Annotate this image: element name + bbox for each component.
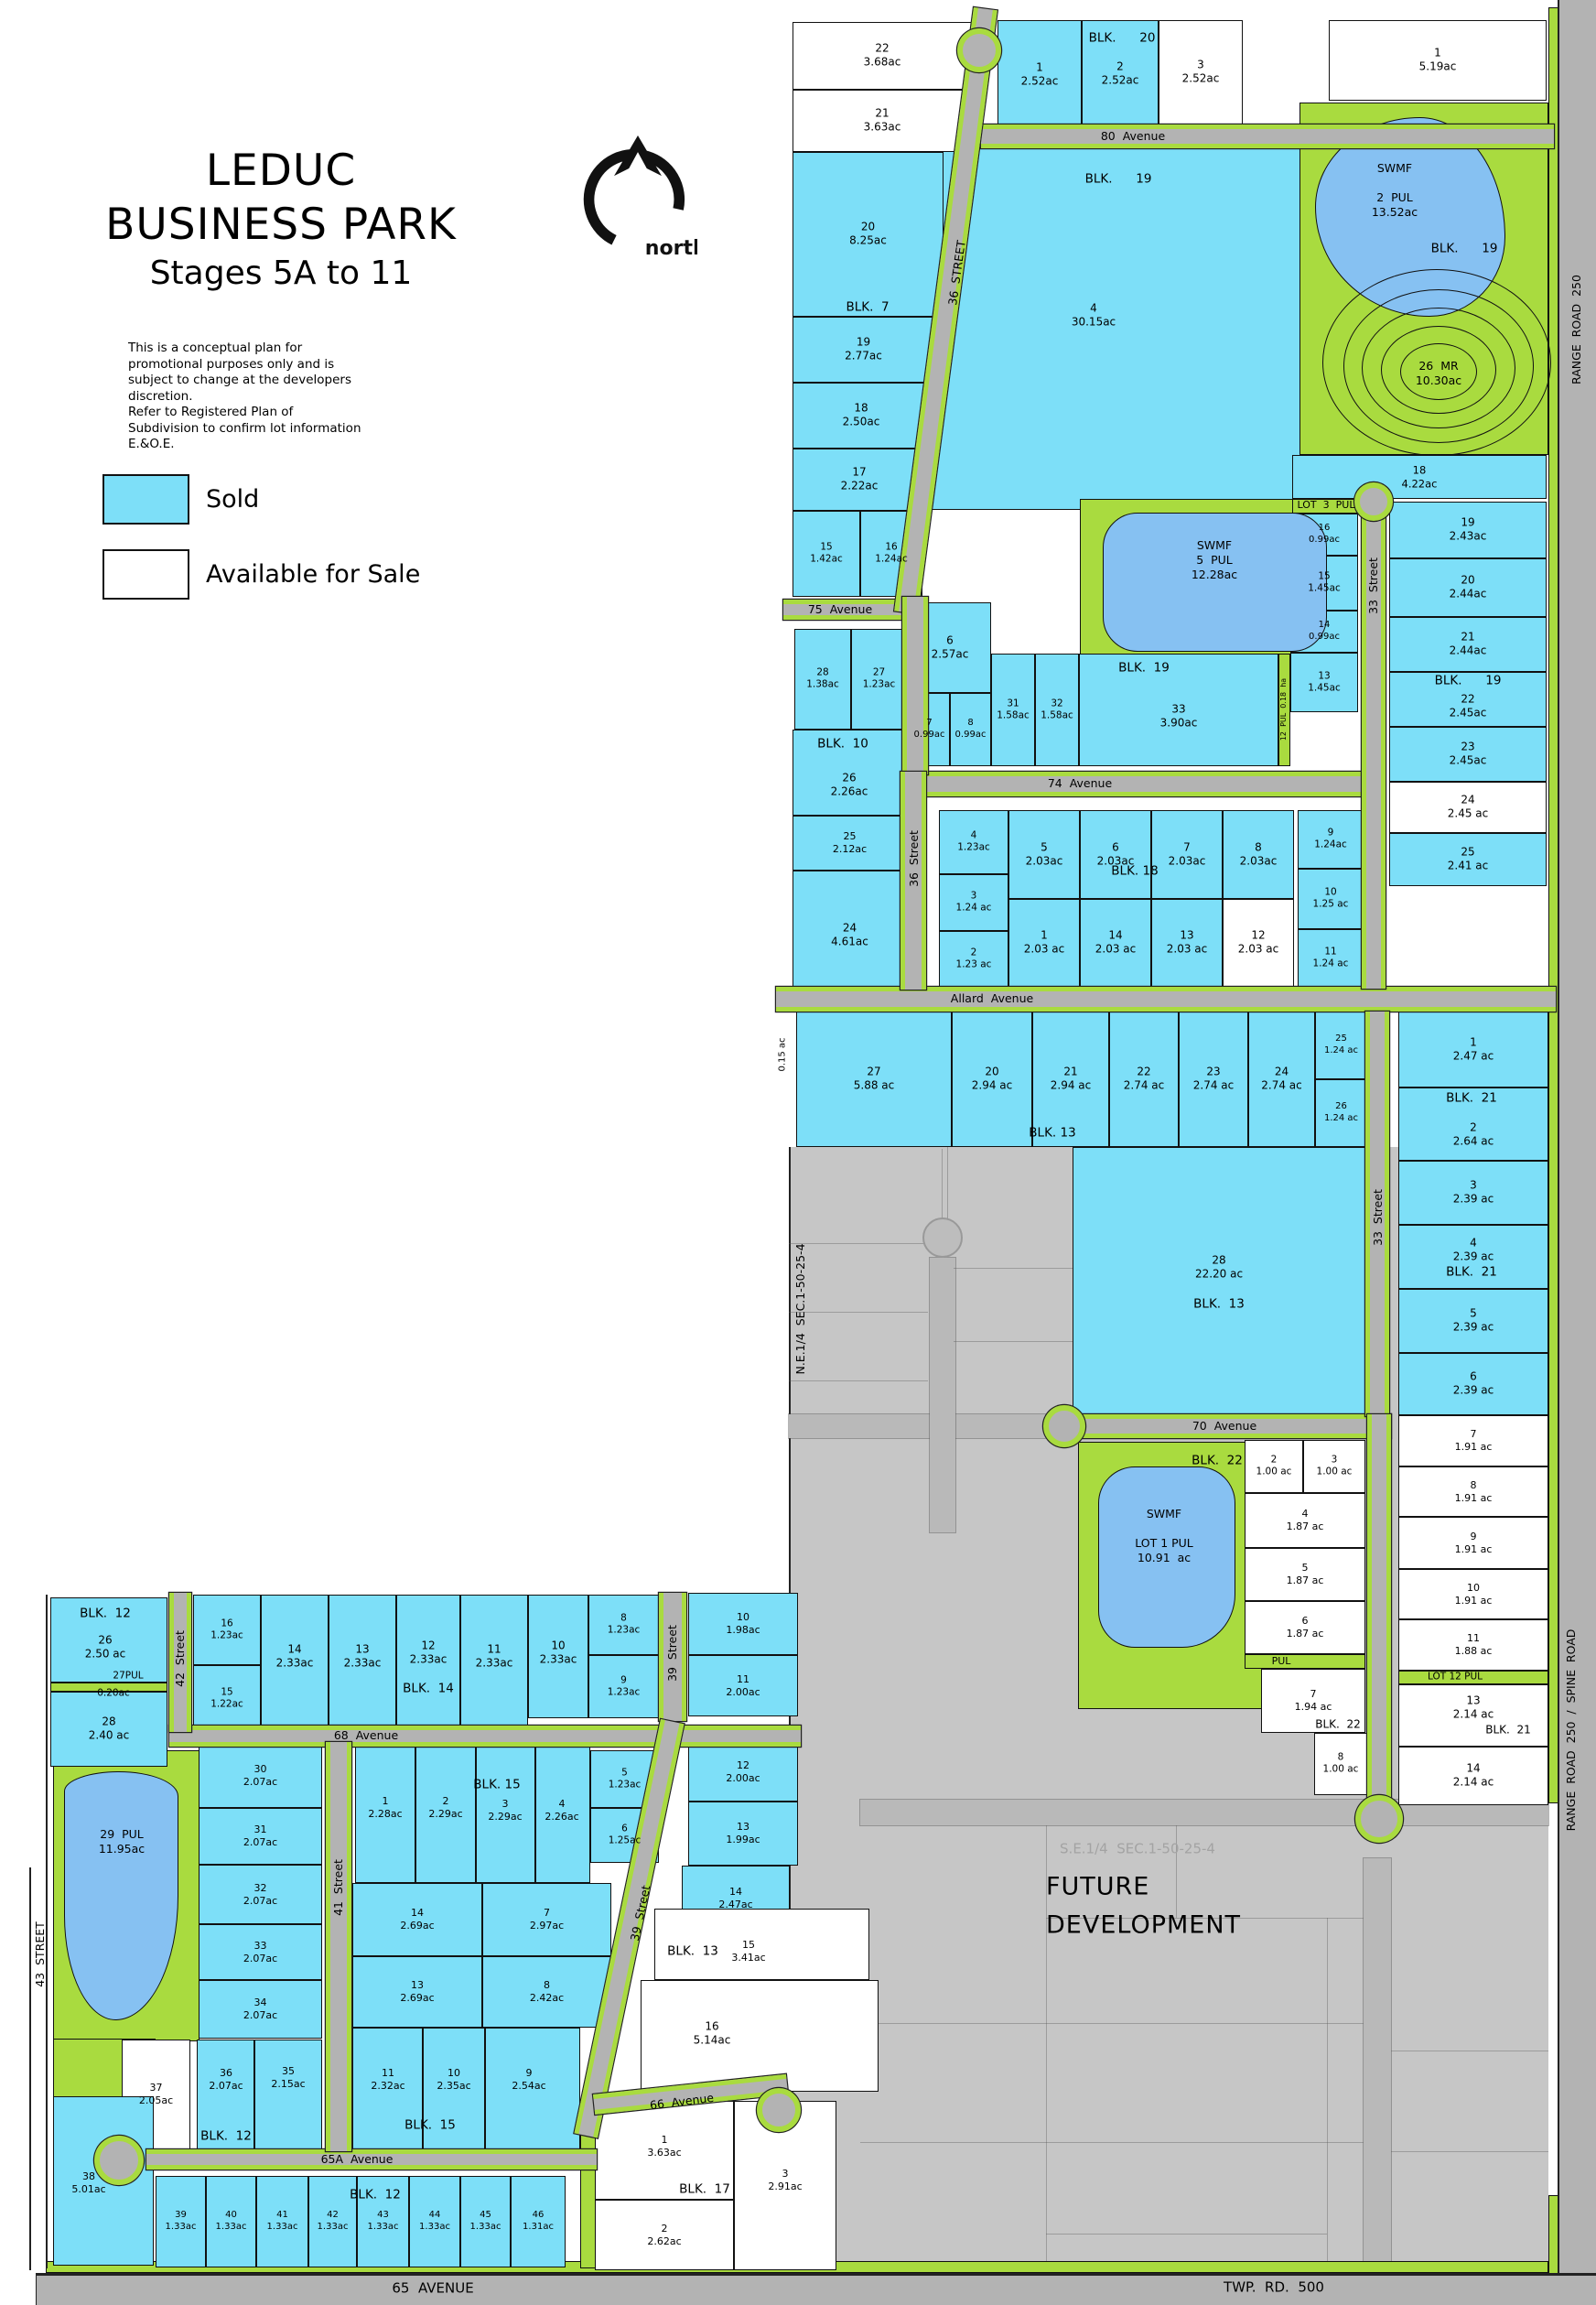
lot-sold [796,1012,952,1147]
ghost-parcel-line [954,1268,1073,1269]
lot-sold [352,1883,482,1956]
ghost-parcel-line [942,1149,943,1220]
boundary-line [1558,0,1559,2274]
lot-sold [1398,1225,1548,1289]
road-horizontal [776,987,1556,1012]
road-vertical [1362,518,1386,989]
lot-sold [1389,617,1547,672]
road-horizontal [169,1726,801,1747]
green-pul-area [1398,1671,1548,1684]
lot-sold [193,1665,261,1733]
road-vertical [659,1593,686,1721]
road-vertical [326,1742,351,2151]
lot-sold [423,2028,485,2149]
green-pul-area [1245,1654,1365,1669]
ghost-parcel-line [1391,2051,1548,2051]
lot-sold [1008,810,1080,899]
lot-available [1398,1517,1548,1569]
lot-sold [1151,810,1223,899]
lot-sold [793,449,926,511]
title-line1: LEDUC [66,145,496,199]
road-vertical [902,597,928,774]
lot-available [641,1980,879,2092]
lot-sold [1080,810,1151,899]
lot-sold [1292,455,1547,499]
ghost-parcel-line [1327,1918,1328,2263]
lot-sold [1035,654,1079,766]
lot-sold [1398,1289,1548,1353]
lot-sold [588,1595,659,1655]
lot-sold [1389,727,1547,782]
lot-sold [193,1595,261,1665]
lot-sold [794,629,851,730]
lot-sold [1151,899,1223,987]
lot-sold [355,1744,415,1883]
lot-sold [482,1956,611,2028]
lot-sold [1079,654,1278,766]
lot-available [1245,1601,1365,1654]
ghost-parcel-line [789,1380,928,1381]
lot-sold [1298,810,1364,869]
lot-sold [952,1012,1032,1147]
lot-sold [950,693,991,766]
ghost-parcel-line [789,1243,928,1244]
lot-sold [920,148,1302,510]
road-vertical [169,1593,191,1732]
lot-available [1245,1493,1365,1548]
lot-sold [1082,20,1159,128]
lot-sold [1008,899,1080,987]
lot-sold [1315,1079,1367,1147]
lot-sold [1298,929,1364,987]
lot-available [1389,782,1547,833]
lot-sold [476,1744,535,1883]
green-pul-area [50,1683,167,1692]
legend-sold-swatch [102,474,189,525]
lot-sold [199,1865,322,1924]
lot-sold [1298,869,1364,929]
lot-sold [793,317,934,383]
lot-sold [1315,1012,1367,1079]
lot-sold [939,810,1008,874]
lot-sold [352,1956,482,2028]
cul-de-sac [1355,1795,1403,1843]
lot-sold [199,1980,322,2039]
ghost-parcel-line [1391,2151,1548,2152]
ghost-cul-de-sac [922,1217,963,1258]
lot-sold [460,1595,528,1733]
lot-sold [1398,1088,1548,1161]
lot-available [1398,1684,1548,1747]
disclaimer-text: This is a conceptual plan for promotiona… [128,341,448,453]
lot-available [1303,1440,1365,1493]
lot-sold [1389,502,1547,558]
lot-sold [197,2040,254,2149]
lot-available [595,2200,734,2270]
lot-available [1261,1669,1365,1733]
lot-sold [688,1593,798,1655]
ghost-road [930,1258,955,1532]
lot-sold [357,2176,409,2267]
lot-available [1314,1733,1367,1795]
lot-sold [460,2176,511,2267]
lot-sold [1398,1161,1548,1225]
road-horizontal [146,2149,597,2170]
ghost-parcel-line [789,1312,928,1313]
lot-sold [1389,558,1547,617]
north-label: north [645,237,697,259]
green-pul-area [1278,654,1290,766]
lot-available [1329,20,1547,101]
lot-sold [396,1595,460,1733]
lot-sold [352,2028,423,2149]
lot-sold [688,1742,798,1802]
lot-sold [793,511,860,597]
legend-available-swatch [102,549,189,600]
lot-sold [1389,672,1547,727]
title-line3: Stages 5A to 11 [66,254,496,292]
lot-available [1398,1747,1548,1805]
cul-de-sac [1043,1405,1085,1447]
lot-sold [1290,653,1358,712]
lot-sold [50,1692,167,1767]
lot-sold [1032,1012,1109,1147]
lot-sold [793,383,930,449]
lot-sold [1109,1012,1179,1147]
lot-sold [1223,810,1294,899]
lot-available [1398,1415,1548,1466]
lot-sold [415,1744,476,1883]
lot-available [1398,1569,1548,1619]
lot-sold [1073,1147,1366,1414]
lot-sold [206,2176,256,2267]
ghost-road [1364,1858,1391,2263]
lot-sold [851,629,907,730]
lot-available [654,1909,869,1980]
lot-sold [50,1597,167,1683]
road-plain [37,2274,1596,2305]
road-horizontal [1073,1414,1391,1438]
site-plan-map: LEDUC BUSINESS PARK Stages 5A to 11 nort… [0,0,1596,2305]
lot-sold [688,1802,798,1866]
swmf-pond [1103,513,1327,652]
road-horizontal [981,124,1554,148]
ghost-parcel-line [954,1341,1073,1342]
map-label: 0.15 ac [778,1037,790,1071]
lot-sold [528,1595,588,1718]
road-vertical [900,772,926,990]
green-pul-area [1292,499,1364,514]
lot-sold [793,152,944,317]
lot-sold [793,816,907,871]
lot-sold [1179,1012,1248,1147]
lot-sold [409,2176,460,2267]
lot-available [595,2101,734,2200]
lot-sold [991,654,1035,766]
lot-available [1398,1619,1548,1671]
lot-sold [997,20,1082,130]
road-vertical [1367,1414,1391,1802]
lot-sold [1080,899,1151,987]
cul-de-sac [757,2088,801,2132]
lot-sold [1398,1353,1548,1415]
road-plain [1559,0,1596,2274]
legend-available-label: Available for Sale [206,560,420,589]
lot-sold [793,730,907,816]
lot-sold [939,931,1008,987]
lot-sold [939,874,1008,931]
lot-sold [511,2176,566,2267]
lot-available [1245,1548,1365,1601]
ghost-parcel-line [1046,1918,1364,1919]
title-line2: BUSINESS PARK [66,199,496,253]
lot-available [793,90,972,152]
lot-sold [199,1924,322,1980]
ghost-parcel-line [1046,1825,1047,2263]
legend-sold-label: Sold [206,485,259,514]
contour-ring [1400,343,1477,400]
ghost-parcel-line [1046,2234,1327,2235]
lot-available [1245,1440,1303,1493]
ghost-parcel-line [860,2023,1364,2024]
page-title: LEDUC BUSINESS PARK Stages 5A to 11 [66,145,496,292]
lot-sold [254,2040,322,2149]
lot-available [1398,1466,1548,1517]
lot-sold [156,2176,206,2267]
boundary-line [29,1867,31,2270]
lot-sold [308,2176,357,2267]
lot-sold [482,1883,611,1956]
lot-available [1159,20,1243,124]
lot-sold [199,1808,322,1865]
lot-sold [793,871,907,1001]
lot-sold [485,2028,580,2149]
cul-de-sac [957,28,1001,72]
cul-de-sac [94,2136,144,2185]
lot-sold [261,1595,329,1733]
lot-available [793,22,972,90]
lot-sold [1398,1012,1548,1088]
lot-sold [1248,1012,1315,1147]
north-arrow-icon: north [578,135,697,259]
lot-sold [199,1744,322,1808]
ghost-parcel-line [860,2142,1364,2143]
lot-sold [256,2176,308,2267]
lot-sold [588,1655,659,1718]
boundary-line [46,1595,48,2268]
road-vertical [1365,1012,1389,1416]
lot-sold [1389,833,1547,886]
lot-available [1223,899,1294,987]
lot-sold [329,1595,396,1733]
lot-sold [535,1741,590,1883]
swmf-pond [1098,1466,1235,1648]
lot-sold [53,2096,154,2266]
road-horizontal [909,772,1366,796]
ghost-parcel-line [1176,1825,1177,1918]
lot-sold [688,1655,798,1716]
cul-de-sac [1354,482,1393,521]
